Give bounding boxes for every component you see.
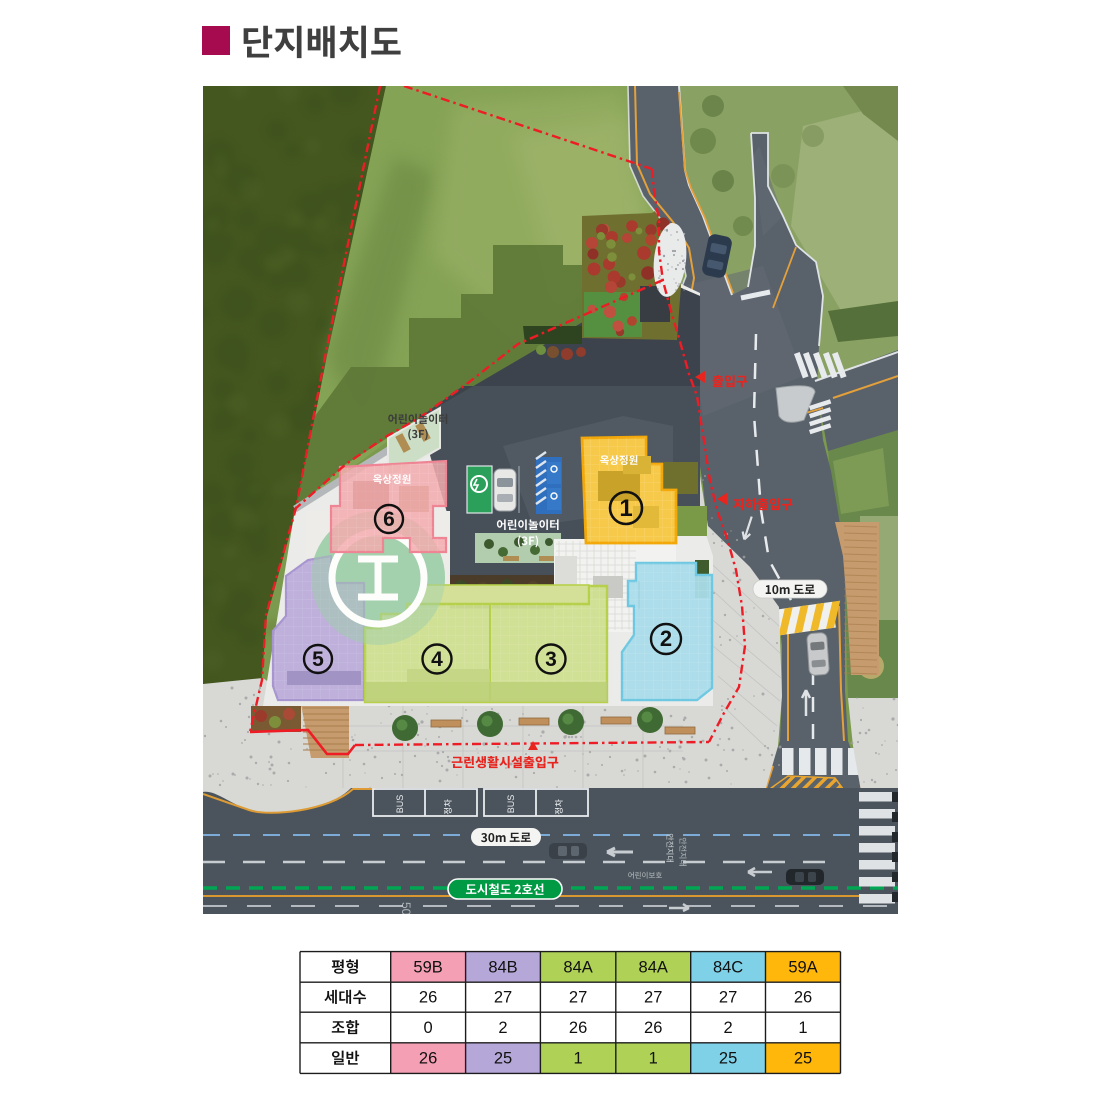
svg-text:6: 6 bbox=[383, 508, 395, 531]
svg-text:27: 27 bbox=[719, 989, 737, 1007]
svg-text:2: 2 bbox=[724, 1019, 733, 1037]
svg-text:26: 26 bbox=[644, 1019, 662, 1037]
svg-text:BUS: BUS bbox=[506, 795, 516, 814]
svg-text:59A: 59A bbox=[788, 958, 817, 976]
svg-text:0: 0 bbox=[424, 1019, 433, 1037]
svg-text:59B: 59B bbox=[413, 958, 442, 976]
svg-text:25: 25 bbox=[794, 1050, 812, 1068]
svg-text:2: 2 bbox=[498, 1019, 507, 1037]
svg-text:84B: 84B bbox=[488, 958, 517, 976]
svg-text:84A: 84A bbox=[639, 958, 668, 976]
svg-text:50: 50 bbox=[399, 902, 413, 916]
svg-text:27: 27 bbox=[569, 989, 587, 1007]
svg-text:5: 5 bbox=[312, 648, 324, 671]
svg-text:26: 26 bbox=[419, 989, 437, 1007]
svg-text:2: 2 bbox=[660, 626, 672, 651]
svg-text:25: 25 bbox=[494, 1050, 512, 1068]
svg-text:1: 1 bbox=[619, 495, 632, 522]
svg-text:1: 1 bbox=[649, 1050, 658, 1068]
svg-text:25: 25 bbox=[719, 1050, 737, 1068]
svg-text:84C: 84C bbox=[713, 958, 743, 976]
svg-text:4: 4 bbox=[431, 648, 443, 671]
svg-text:27: 27 bbox=[644, 989, 662, 1007]
svg-text:26: 26 bbox=[569, 1019, 587, 1037]
svg-text:27: 27 bbox=[494, 989, 512, 1007]
svg-text:84A: 84A bbox=[563, 958, 592, 976]
svg-text:BUS: BUS bbox=[395, 795, 405, 814]
svg-text:1: 1 bbox=[798, 1019, 807, 1037]
svg-text:1: 1 bbox=[574, 1050, 583, 1068]
svg-text:26: 26 bbox=[419, 1050, 437, 1068]
svg-text:3: 3 bbox=[545, 648, 557, 671]
svg-text:26: 26 bbox=[794, 989, 812, 1007]
